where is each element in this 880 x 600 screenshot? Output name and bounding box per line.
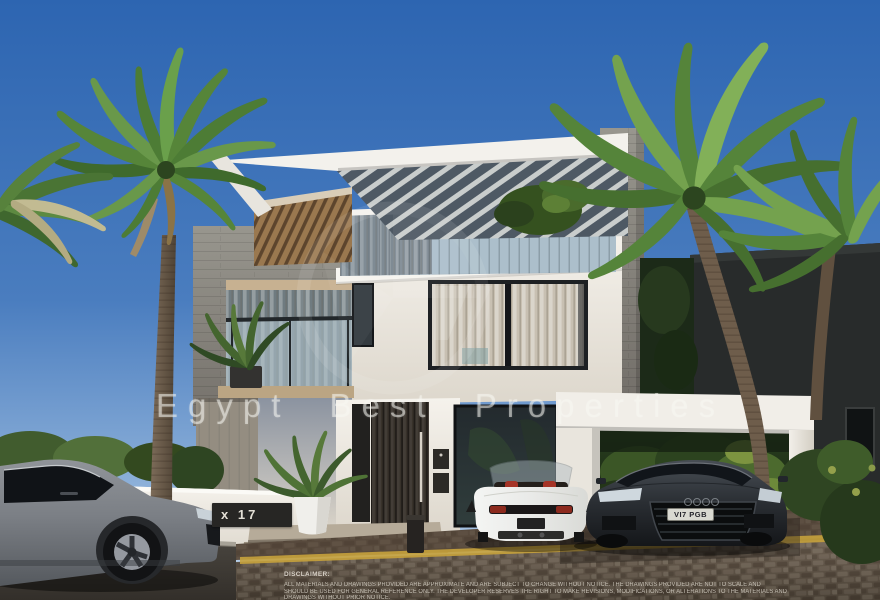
scene-canvas — [0, 0, 880, 600]
disclaimer-title: DISCLAIMER: — [284, 571, 813, 578]
bollard — [406, 515, 425, 553]
disclaimer-line: DRAWINGS WITHOUT PRIOR NOTICE. — [284, 595, 787, 600]
watermark-text: Egypt Best Properties — [156, 389, 725, 423]
villa-render-image: Egypt Best Properties x 17 VI7 PGB DISCL… — [0, 0, 880, 600]
background-foliage — [638, 258, 698, 398]
suv-wheel — [103, 523, 161, 581]
disclaimer-line: SHOULD BE USED FOR GENERAL REFERENCE ONL… — [284, 589, 787, 596]
villa-number-sign: x 17 — [212, 503, 292, 527]
disclaimer: DISCLAIMER: ALL MATERIALS AND DRAWINGS P… — [284, 571, 813, 600]
disclaimer-line: ALL MATERIALS AND DRAWINGS PROVIDED ARE … — [284, 582, 787, 589]
license-plate: VI7 PGB — [667, 508, 714, 521]
